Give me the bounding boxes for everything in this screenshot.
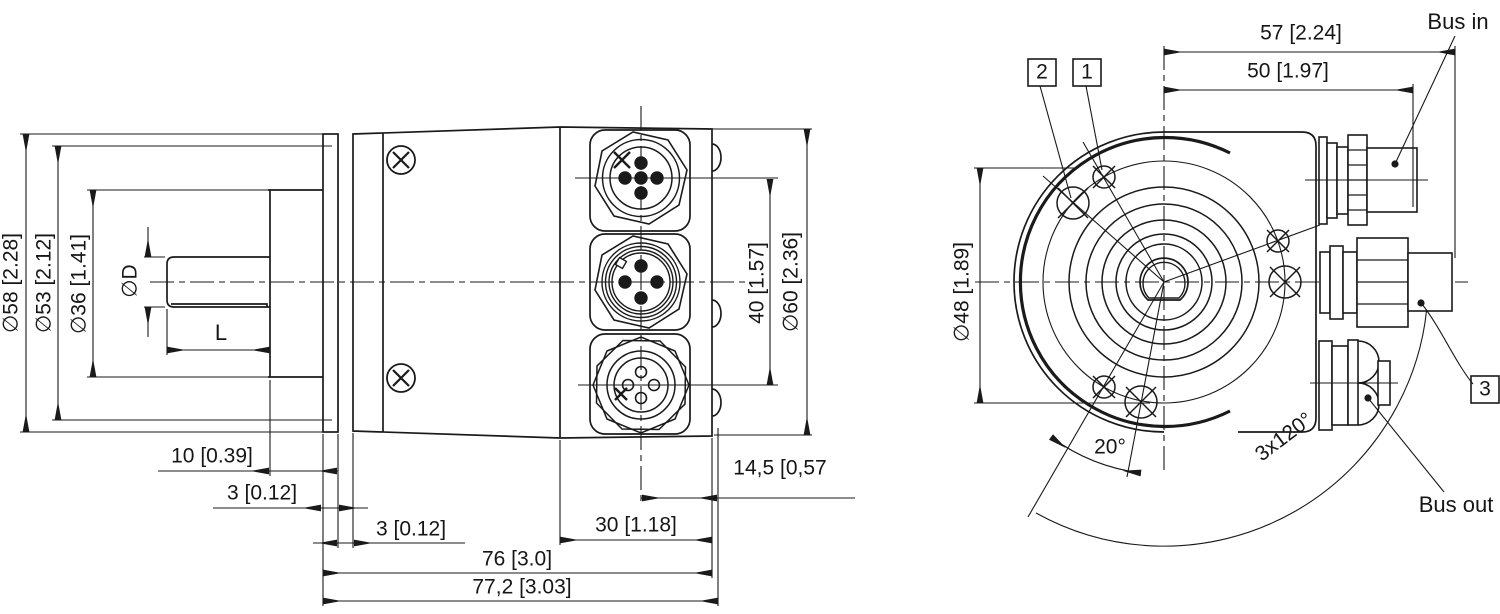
keyway-mark-icon	[615, 388, 627, 400]
bus-in-connector	[1305, 135, 1428, 225]
mounting-screws	[387, 146, 415, 392]
dim-3-gap-label: 3 [0.12]	[376, 519, 446, 540]
dim-dia58-label: ∅58 [2.28]	[1, 233, 22, 333]
dim-57-label: 57 [2.24]	[1260, 23, 1342, 44]
dim-10-label: 10 [0.39]	[171, 446, 253, 467]
dim-dia60-label: ∅60 [2.36]	[781, 232, 802, 332]
bus-in-label: Bus in	[1427, 11, 1488, 33]
dim-shaft-len-label: L	[215, 322, 227, 344]
dim-dia53-label: ∅53 [2.12]	[34, 233, 55, 333]
dim-77-2-label: 77,2 [3.03]	[472, 577, 571, 598]
keyway-notch-icon	[616, 258, 627, 269]
dim-dia48-label: ∅48 [1.89]	[952, 242, 973, 342]
dim-50-label: 50 [1.97]	[1247, 61, 1329, 82]
callout-1-label: 1	[1081, 62, 1093, 83]
connector-bump-bot	[712, 389, 721, 416]
connector-bump-top	[712, 144, 721, 171]
dim-3-flange-label: 3 [0.12]	[227, 483, 297, 504]
front-view	[974, 36, 1499, 546]
dim-dia36-label: ∅36 [1.41]	[69, 234, 90, 334]
dim-angle20-label: 20°	[1094, 437, 1126, 458]
bus-out-connector	[1310, 340, 1398, 430]
front-dimensions	[974, 46, 1455, 403]
dim-14-5-label: 14,5 [0,57	[733, 458, 826, 479]
flange-plate	[323, 134, 338, 432]
drawing-sheet: ∅58 [2.28] ∅53 [2.12] ∅36 [1.41] ∅D L 10…	[0, 0, 1500, 614]
connector-bump-mid	[712, 300, 721, 327]
dim-30-label: 30 [1.18]	[595, 515, 677, 536]
dim-76-label: 76 [3.0]	[482, 549, 552, 570]
callout-3-label: 3	[1479, 379, 1491, 400]
bus-out-label: Bus out	[1419, 494, 1494, 516]
power-connector	[1320, 238, 1452, 327]
dim-40-label: 40 [1.57]	[747, 242, 768, 324]
dim-shaft-dia-label: ∅D	[120, 264, 141, 297]
callout-2-label: 2	[1036, 62, 1048, 83]
